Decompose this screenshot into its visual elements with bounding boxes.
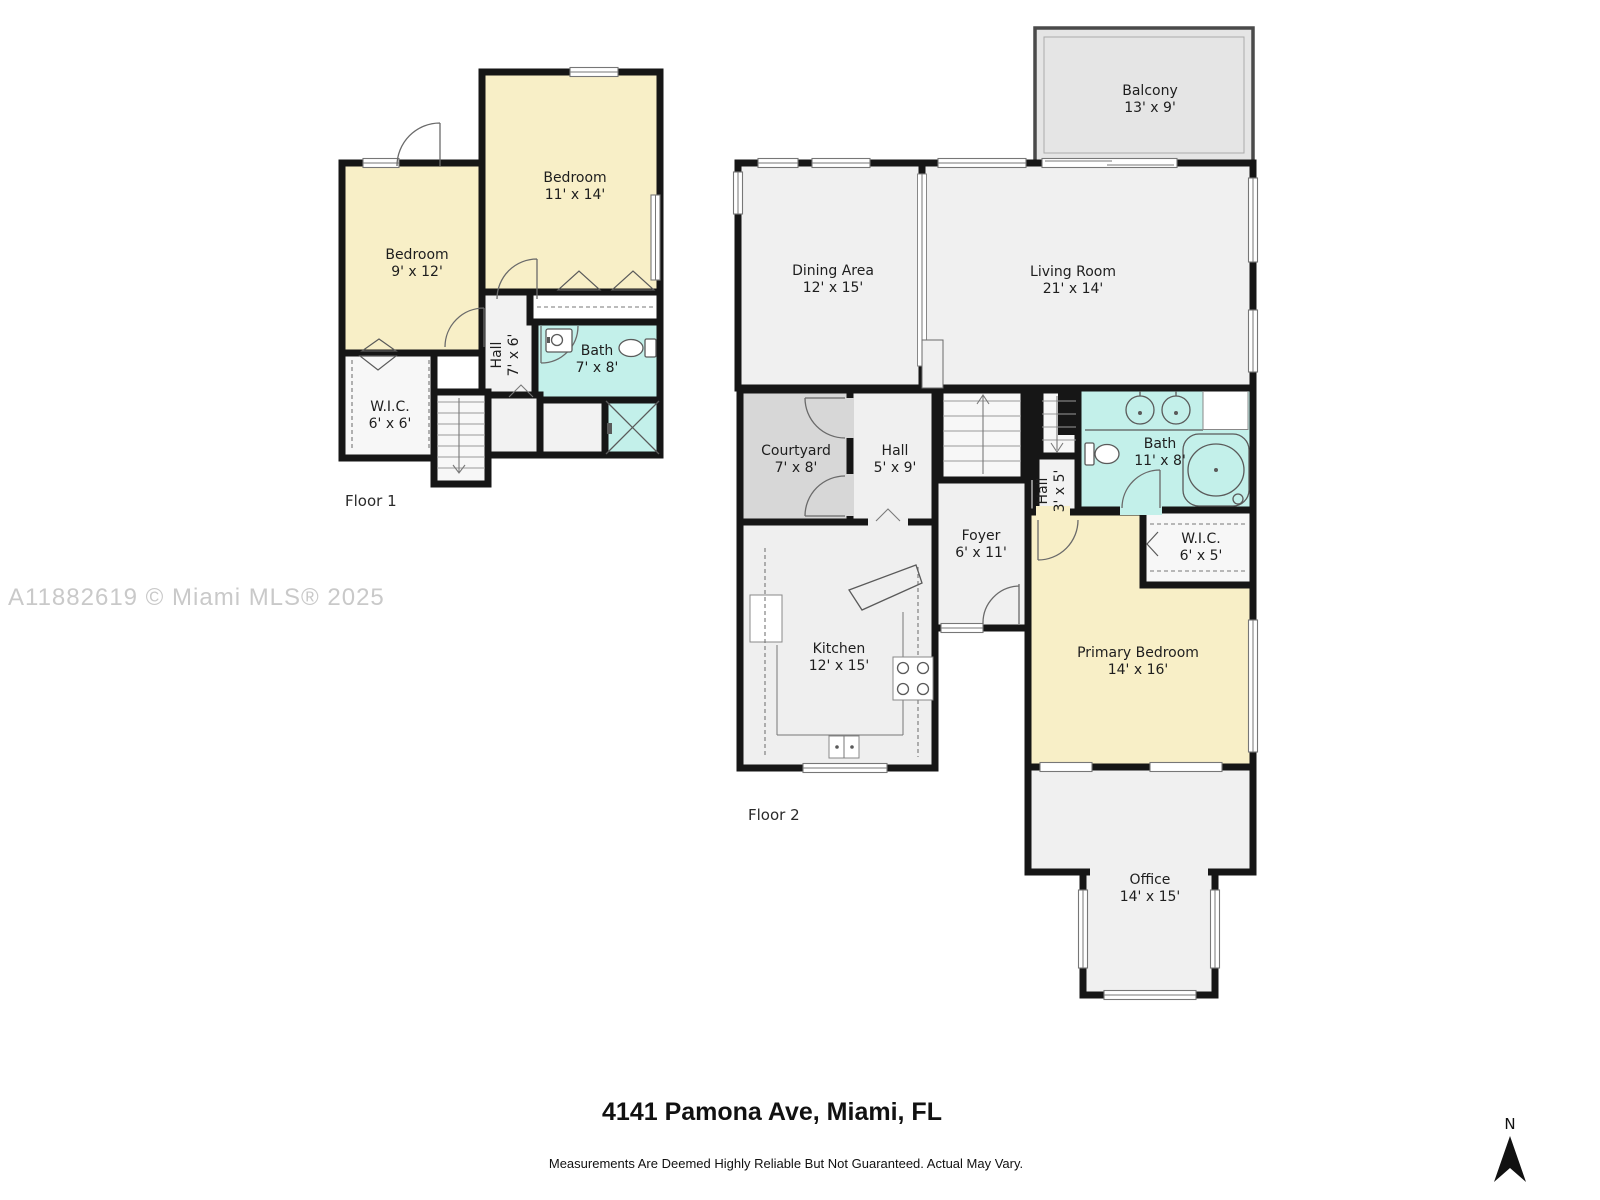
room-label-f1-wic: W.I.C. 6' x 6' [369, 399, 412, 433]
f1-lower-strip [540, 400, 605, 455]
room-label-f1-bedroom-small: Bedroom 9' x 12' [385, 247, 448, 281]
floor2-drawing [734, 28, 1258, 1000]
fridge-icon [750, 595, 782, 642]
room-label-f2-office: Office 14' x 15' [1120, 872, 1181, 906]
f2-office-top [1028, 767, 1253, 872]
mls-watermark: A11882619 © Miami MLS® 2025 [8, 584, 385, 612]
room-label-f2-primary-bedroom: Primary Bedroom 14' x 16' [1077, 645, 1199, 679]
room-label-f2-dining: Dining Area 12' x 15' [792, 263, 874, 297]
room-label-f2-living: Living Room 21' x 14' [1030, 264, 1116, 298]
room-label-f2-hall-small: Hall 3' x 5' [1035, 470, 1069, 513]
disclaimer-text: Measurements Are Deemed Highly Reliable … [549, 1156, 1023, 1171]
room-label-f1-bath: Bath 7' x 8' [576, 343, 619, 377]
f2-stairs-up [940, 390, 1024, 480]
room-label-f2-courtyard: Courtyard 7' x 8' [761, 443, 831, 477]
floor2-label: Floor 2 [748, 806, 800, 824]
room-label-f2-foyer: Foyer 6' x 11' [955, 528, 1007, 562]
room-label-f2-hall: Hall 5' x 9' [874, 443, 917, 477]
north-label: N [1504, 1115, 1515, 1133]
toilet-icon [1085, 443, 1094, 465]
north-arrow-icon [1494, 1136, 1526, 1182]
address-title: 4141 Pamona Ave, Miami, FL [602, 1098, 942, 1127]
floor-plan-page: Bedroom 9' x 12' Bedroom 11' x 14' Hall … [0, 0, 1600, 1200]
room-label-f2-bath: Bath 11' x 8' [1134, 436, 1186, 470]
f1-toilet-icon [619, 339, 656, 357]
f1-sink-icon [546, 329, 572, 352]
room-label-f1-bedroom-large: Bedroom 11' x 14' [543, 170, 606, 204]
room-label-f2-balcony: Balcony 13' x 9' [1122, 83, 1178, 117]
room-label-f2-kitchen: Kitchen 12' x 15' [809, 641, 870, 675]
floor1-label: Floor 1 [345, 492, 397, 510]
room-label-f1-hall: Hall 7' x 6' [489, 334, 523, 377]
room-label-f2-wic: W.I.C. 6' x 5' [1180, 531, 1223, 565]
